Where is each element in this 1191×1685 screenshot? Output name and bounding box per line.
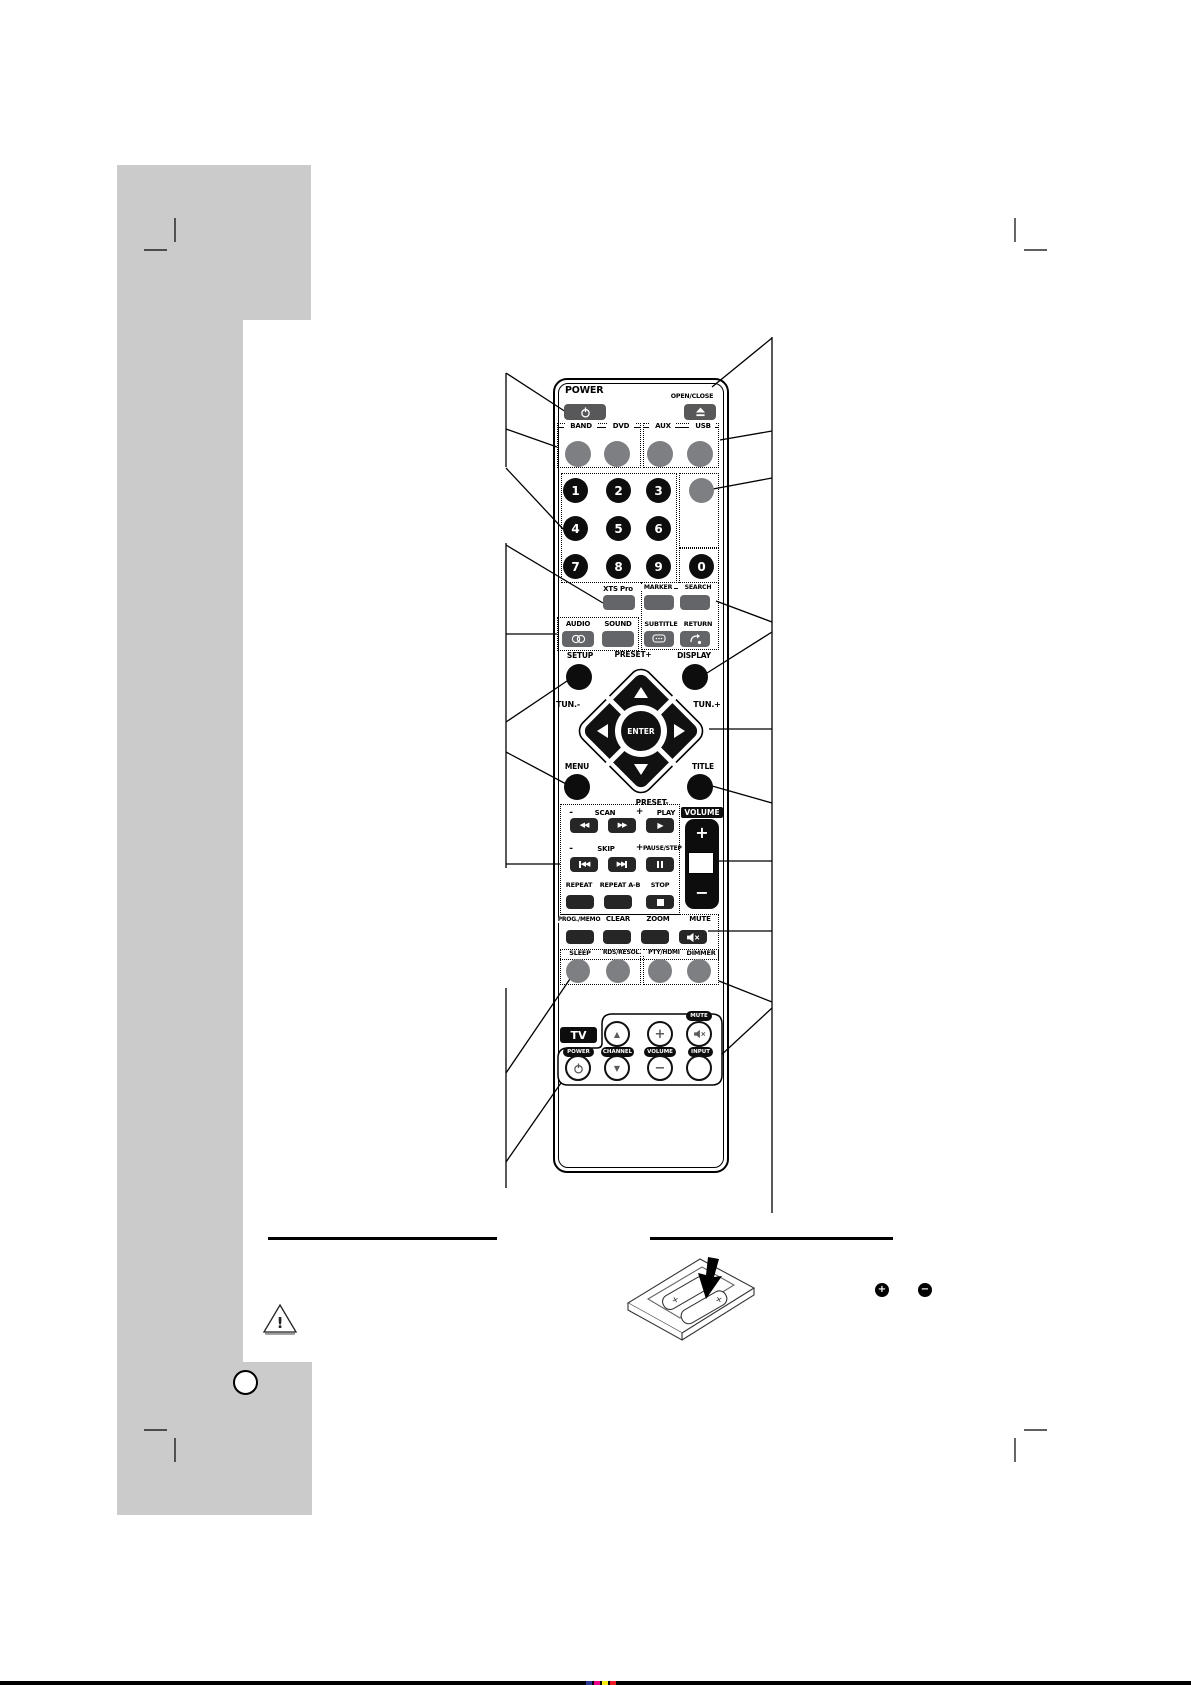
- skip-minus-label: -: [567, 845, 575, 854]
- digit-6-button[interactable]: 6: [646, 516, 671, 541]
- tv-power-button[interactable]: [565, 1055, 591, 1081]
- label-dash: [675, 427, 689, 428]
- skip-label: SKIP: [593, 846, 619, 853]
- volume-minus-label[interactable]: −: [685, 885, 719, 901]
- skip-bar: [625, 861, 627, 868]
- skip-forward-button[interactable]: ▶▶: [608, 857, 636, 872]
- minus-polarity-icon: −: [918, 1283, 932, 1297]
- scan-minus-label: -: [567, 809, 575, 818]
- sound-label: SOUND: [601, 621, 635, 628]
- print-color-mark: [594, 1681, 600, 1685]
- aux-button[interactable]: [647, 441, 673, 467]
- title-button[interactable]: [687, 774, 713, 800]
- print-color-mark: [602, 1681, 608, 1685]
- label-dash: [644, 427, 649, 428]
- digit-4-button[interactable]: 4: [563, 516, 588, 541]
- skip-back-icon: ◀◀: [581, 861, 590, 868]
- volume-plus-label[interactable]: +: [685, 825, 719, 841]
- stop-label: STOP: [646, 882, 674, 889]
- play-icon: ▶: [657, 822, 662, 830]
- search-button[interactable]: [680, 595, 710, 610]
- scan-forward-button[interactable]: ▶▶: [608, 818, 636, 833]
- tv-mute-icon: [693, 1029, 706, 1039]
- sleep-label: SLEEP: [565, 950, 595, 957]
- digit-8-button[interactable]: 8: [606, 554, 631, 579]
- label-dash: [674, 588, 678, 589]
- volume-slider[interactable]: + −: [685, 819, 719, 909]
- tv-mute-button[interactable]: [686, 1021, 712, 1047]
- tv-volume-plus-icon: +: [655, 1027, 666, 1042]
- power-label: POWER: [565, 386, 603, 396]
- prog-memo-label: PROG./MEMO.: [556, 917, 604, 923]
- repeat-ab-button[interactable]: [604, 895, 632, 909]
- prog-memo-button[interactable]: [566, 930, 594, 944]
- warning-triangle-icon: !: [262, 1303, 298, 1337]
- scan-label: SCAN: [590, 810, 620, 817]
- rds-resol-label: RDS/RESOL.: [600, 950, 644, 956]
- display-label: DISPLAY: [672, 652, 716, 660]
- print-color-mark: [586, 1681, 592, 1685]
- tv-channel-down-button[interactable]: ▼: [604, 1055, 630, 1081]
- eject-icon: [695, 407, 706, 417]
- label-dash: [634, 427, 640, 428]
- power-icon: [580, 407, 591, 418]
- plus-polarity-icon: +: [875, 1283, 889, 1297]
- repeat-label: REPEAT: [560, 882, 598, 889]
- usb-label: USB: [690, 423, 716, 430]
- label-dash: [558, 427, 564, 428]
- warning-exclamation: !: [277, 1314, 284, 1332]
- setup-label: SETUP: [564, 652, 596, 660]
- open-close-label: OPEN/CLOSE: [668, 394, 716, 400]
- sleep-button[interactable]: [566, 959, 590, 983]
- aux-label: AUX: [650, 423, 676, 430]
- tv-channel-up-button[interactable]: ▲: [604, 1021, 630, 1047]
- band-button[interactable]: [565, 441, 591, 467]
- enter-label: ENTER: [627, 727, 655, 736]
- clear-button[interactable]: [603, 930, 631, 944]
- band-label: BAND: [565, 423, 597, 430]
- preset-plus-label: PRESET+: [610, 651, 656, 659]
- unlabeled-round-button[interactable]: [689, 478, 714, 503]
- digit-0-button[interactable]: 0: [689, 554, 714, 579]
- battery-installation-illustration: + +: [620, 1243, 765, 1353]
- scan-plus-label: +: [635, 808, 644, 817]
- pause-icon: [657, 861, 659, 868]
- clear-label: CLEAR: [601, 916, 635, 923]
- repeat-button[interactable]: [566, 895, 594, 909]
- audio-button[interactable]: [562, 631, 594, 647]
- skip-forward-icon: ▶▶: [617, 861, 626, 868]
- title-label: TITLE: [689, 763, 717, 771]
- label-dash: [715, 427, 719, 428]
- return-button[interactable]: [680, 631, 710, 647]
- zoom-label: ZOOM: [643, 916, 673, 923]
- digit-2-button[interactable]: 2: [606, 478, 631, 503]
- pty-hdmi-label: PTY/HDMI: [645, 950, 683, 956]
- digit-5-button[interactable]: 5: [606, 516, 631, 541]
- dimmer-button[interactable]: [687, 959, 711, 983]
- digit-1-button[interactable]: 1: [563, 478, 588, 503]
- digit-3-button[interactable]: 3: [646, 478, 671, 503]
- subtitle-label: SUBTITLE: [642, 621, 680, 628]
- stop-button[interactable]: [646, 895, 674, 909]
- pause-icon: [661, 861, 663, 868]
- digit-9-button[interactable]: 9: [646, 554, 671, 579]
- channel-down-icon: ▼: [614, 1064, 620, 1073]
- navigation-pad[interactable]: ENTER: [575, 665, 707, 797]
- return-icon: [689, 634, 702, 645]
- menu-button[interactable]: [564, 774, 590, 800]
- marker-button[interactable]: [644, 595, 674, 610]
- label-dash: [597, 427, 606, 428]
- tv-volume-up-button[interactable]: +: [647, 1021, 673, 1047]
- play-button[interactable]: ▶: [646, 818, 674, 833]
- print-color-mark: [610, 1681, 616, 1685]
- rewind-icon: ◀◀: [580, 822, 589, 829]
- zoom-button[interactable]: [641, 930, 669, 944]
- digit-7-button[interactable]: 7: [563, 554, 588, 579]
- search-label: SEARCH: [679, 585, 717, 591]
- subtitle-icon: [652, 634, 666, 644]
- open-close-button[interactable]: [684, 404, 716, 420]
- audio-label: AUDIO: [562, 621, 594, 628]
- xts-pro-label: XTS Pro: [601, 586, 635, 593]
- volume-badge: VOLUME: [681, 807, 723, 818]
- manual-page: POWER OPEN/CLOSE BAND DVD AUX USB: [0, 0, 1191, 1685]
- tv-volume-down-button[interactable]: −: [647, 1055, 673, 1081]
- sound-button[interactable]: [602, 631, 634, 647]
- power-button[interactable]: [564, 404, 606, 420]
- page-number-circle: [233, 1370, 258, 1395]
- tv-volume-minus-icon: −: [655, 1061, 666, 1076]
- mute-icon: [686, 932, 700, 943]
- marker-label: MARKER: [641, 585, 675, 591]
- dimmer-label: DIMMER: [684, 950, 718, 957]
- scan-back-button[interactable]: ◀◀: [570, 818, 598, 833]
- dvd-label: DVD: [607, 423, 635, 430]
- tv-input-button[interactable]: [686, 1055, 712, 1081]
- pause-step-label: PAUSE/STEP: [643, 846, 679, 852]
- mute-label: MUTE: [685, 916, 715, 923]
- tv-badge: TV: [560, 1027, 597, 1043]
- subtitle-button[interactable]: [644, 631, 674, 647]
- skip-back-button[interactable]: ◀◀: [570, 857, 598, 872]
- xts-pro-button[interactable]: [603, 595, 635, 610]
- volume-knob[interactable]: [688, 852, 714, 874]
- tv-mute-badge: MUTE: [686, 1011, 712, 1021]
- pty-hdmi-button[interactable]: [648, 959, 672, 983]
- audio-icon: [571, 634, 586, 644]
- pause-step-button[interactable]: [646, 857, 674, 872]
- channel-up-icon: ▲: [614, 1030, 620, 1039]
- play-label: PLAY: [652, 810, 680, 817]
- dvd-button[interactable]: [604, 441, 630, 467]
- mute-button[interactable]: [679, 930, 707, 944]
- return-label: RETURN: [681, 621, 715, 628]
- rds-resol-button[interactable]: [606, 959, 630, 983]
- stop-icon: [657, 899, 664, 906]
- fast-forward-icon: ▶▶: [618, 822, 627, 829]
- usb-button[interactable]: [687, 441, 713, 467]
- repeat-ab-label: REPEAT A-B: [599, 882, 641, 889]
- tv-power-icon: [573, 1063, 584, 1074]
- menu-label: MENU: [562, 763, 592, 771]
